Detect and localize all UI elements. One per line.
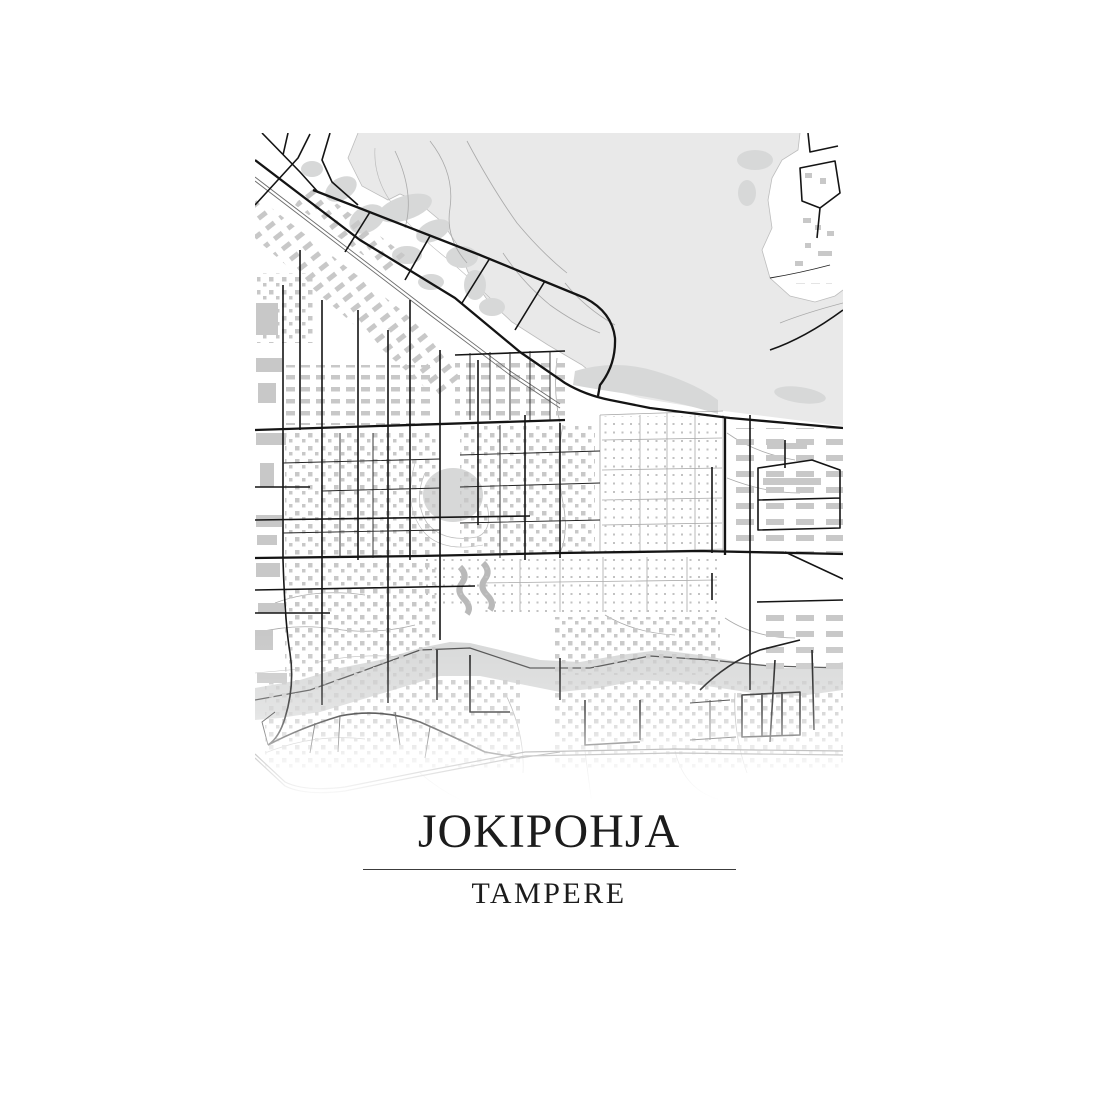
map-fade-overlay: [255, 633, 843, 830]
page-background: { "poster": { "title": "JOKIPOHJA", "sub…: [0, 0, 1094, 1094]
title-divider: [363, 869, 736, 870]
city-map-svg: [255, 133, 843, 830]
poster-title: JOKIPOHJA: [255, 806, 843, 858]
title-block: JOKIPOHJA TAMPERE: [255, 806, 843, 910]
poster-subtitle: TAMPERE: [255, 878, 843, 910]
city-map-poster: [255, 133, 843, 830]
